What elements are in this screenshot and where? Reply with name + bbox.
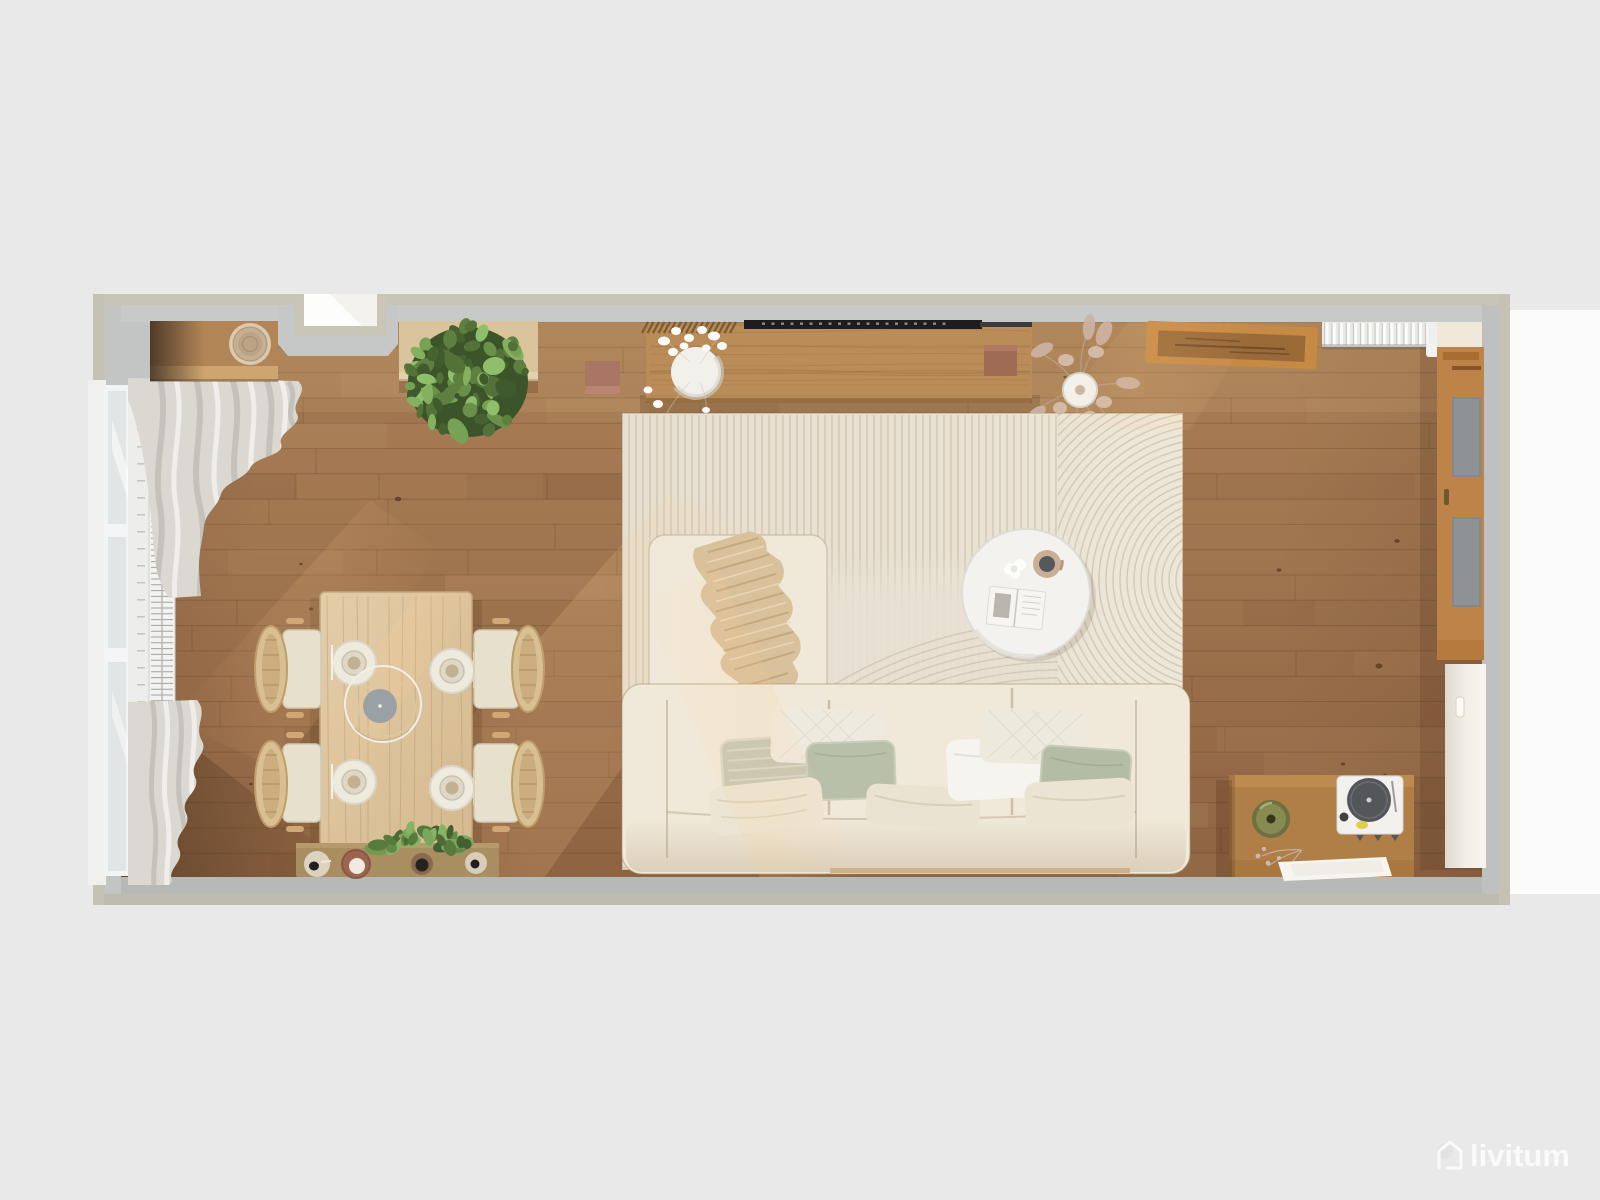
- svg-text:livitum: livitum: [1470, 1138, 1570, 1173]
